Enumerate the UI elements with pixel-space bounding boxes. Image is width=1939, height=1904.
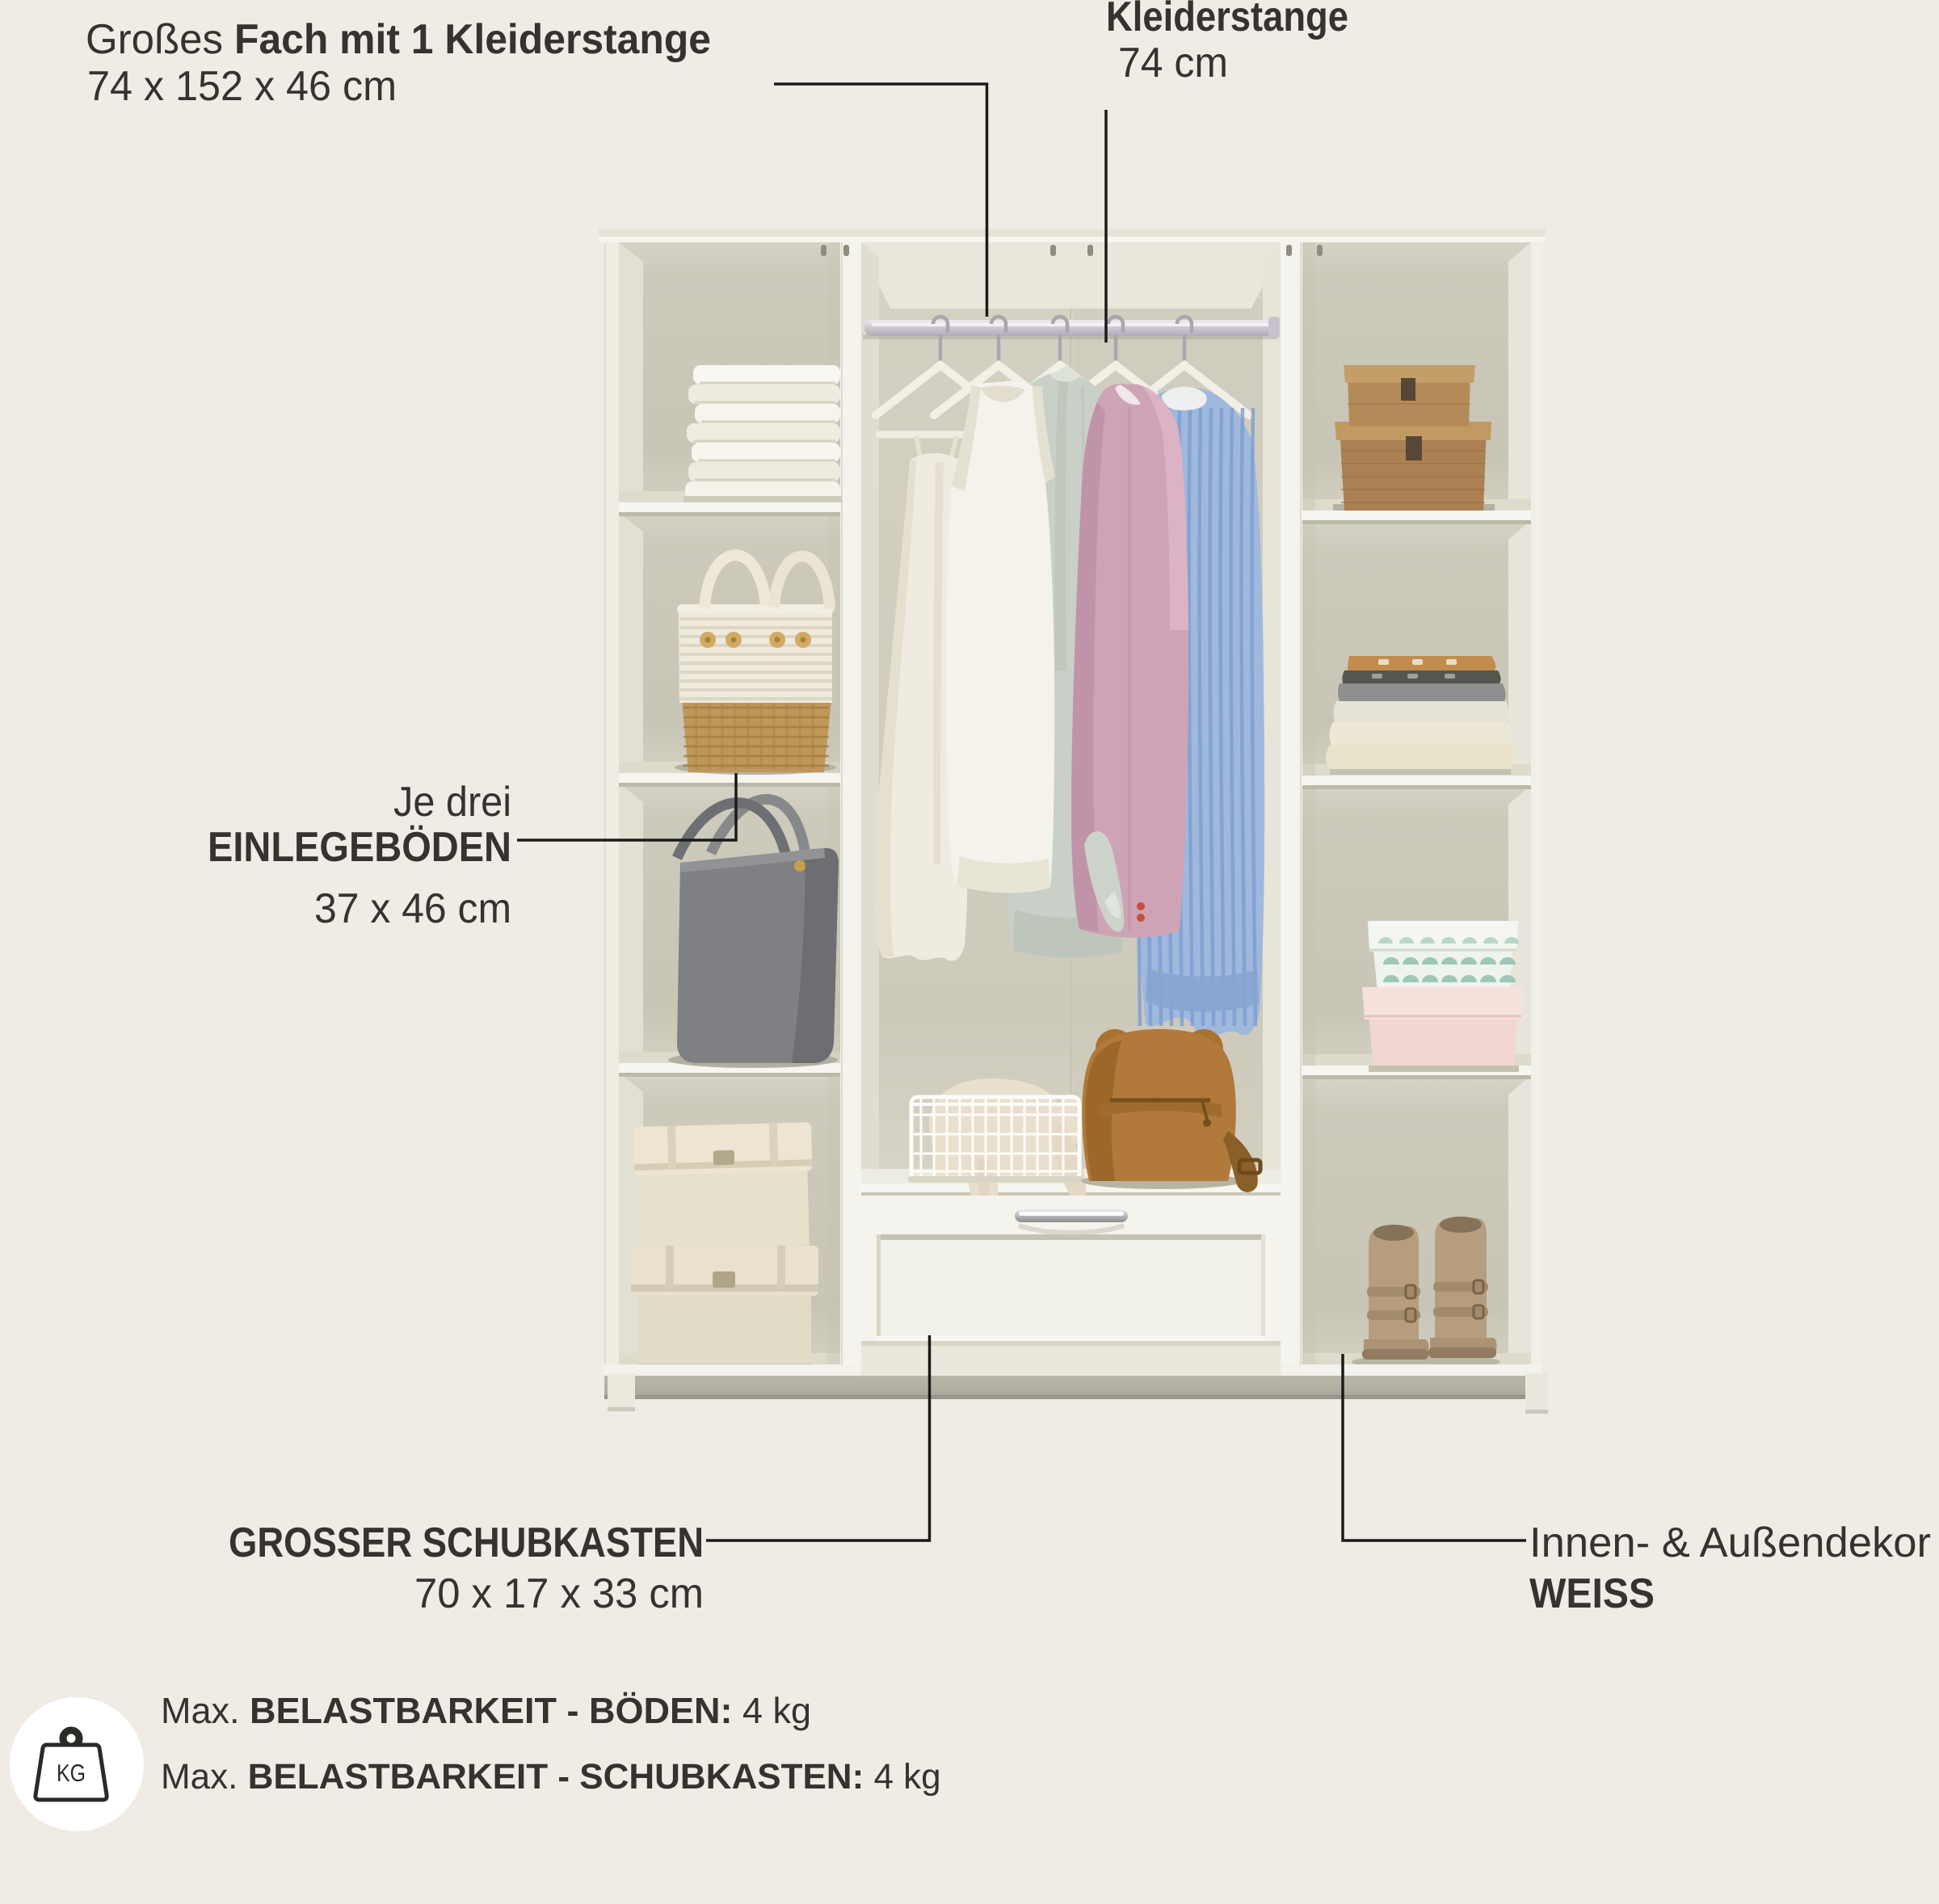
svg-text:Max. BELASTBARKEIT - SCHUBKAST: Max. BELASTBARKEIT - SCHUBKASTEN: 4 kg	[161, 1757, 941, 1797]
svg-text:EINLEGEBÖDEN: EINLEGEBÖDEN	[208, 824, 511, 871]
svg-text:GROSSER SCHUBKASTEN: GROSSER SCHUBKASTEN	[229, 1519, 704, 1566]
svg-text:KG: KG	[57, 1760, 86, 1787]
svg-text:Großes: Großes	[86, 16, 223, 63]
svg-text:74 x 152 x 46 cm: 74 x 152 x 46 cm	[87, 63, 397, 110]
svg-text:Fach mit 1 Kleiderstange: Fach mit 1 Kleiderstange	[234, 16, 711, 63]
svg-text:Je drei: Je drei	[393, 779, 511, 826]
svg-text:70 x 17 x 33 cm: 70 x 17 x 33 cm	[414, 1570, 704, 1617]
svg-text:Innen- & Außendekor: Innen- & Außendekor	[1529, 1519, 1931, 1566]
svg-text:Max. BELASTBARKEIT - BÖDEN: 4: Max. BELASTBARKEIT - BÖDEN: 4 kg	[161, 1690, 811, 1731]
svg-text:WEISS: WEISS	[1529, 1570, 1655, 1617]
svg-text:74 cm: 74 cm	[1118, 40, 1228, 86]
svg-text:37 x 46 cm: 37 x 46 cm	[314, 885, 511, 932]
svg-text:Kleiderstange: Kleiderstange	[1106, 0, 1348, 40]
